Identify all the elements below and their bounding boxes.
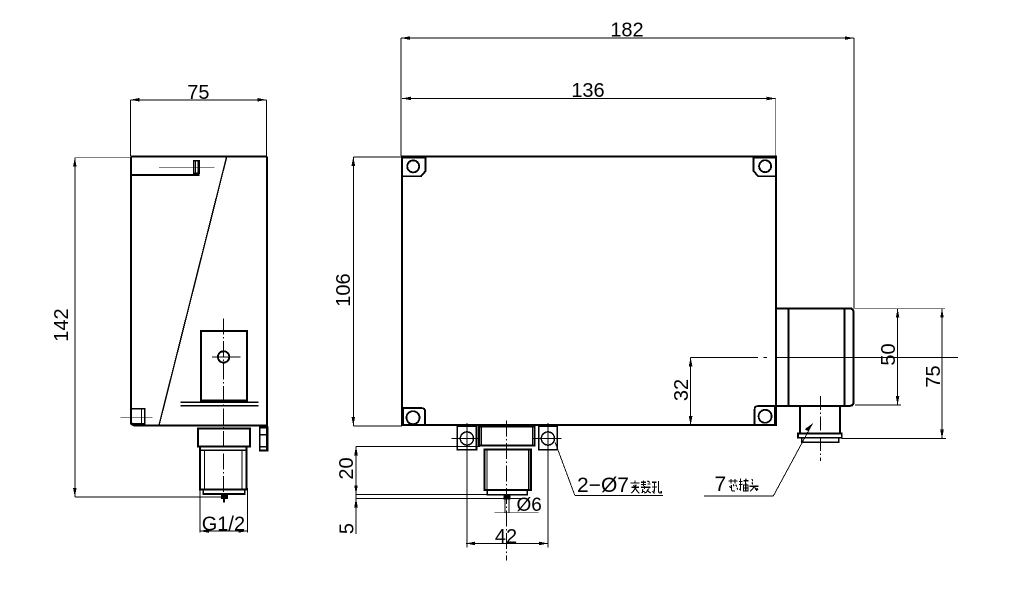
svg-text:G1/2: G1/2 — [202, 514, 245, 536]
svg-text:142: 142 — [51, 308, 73, 341]
svg-text:75: 75 — [923, 365, 945, 387]
svg-text:75: 75 — [187, 82, 209, 104]
svg-text:106: 106 — [333, 273, 355, 306]
svg-text:7: 7 — [715, 473, 727, 496]
svg-text:32: 32 — [671, 379, 693, 401]
svg-text:5: 5 — [337, 523, 359, 534]
svg-text:2−Ø7: 2−Ø7 — [577, 474, 629, 497]
svg-text:182: 182 — [610, 20, 643, 42]
svg-text:50: 50 — [878, 343, 900, 365]
svg-text:Ø6: Ø6 — [517, 495, 542, 516]
svg-text:136: 136 — [571, 80, 604, 102]
svg-text:42: 42 — [495, 526, 517, 548]
svg-text:20: 20 — [336, 457, 358, 479]
